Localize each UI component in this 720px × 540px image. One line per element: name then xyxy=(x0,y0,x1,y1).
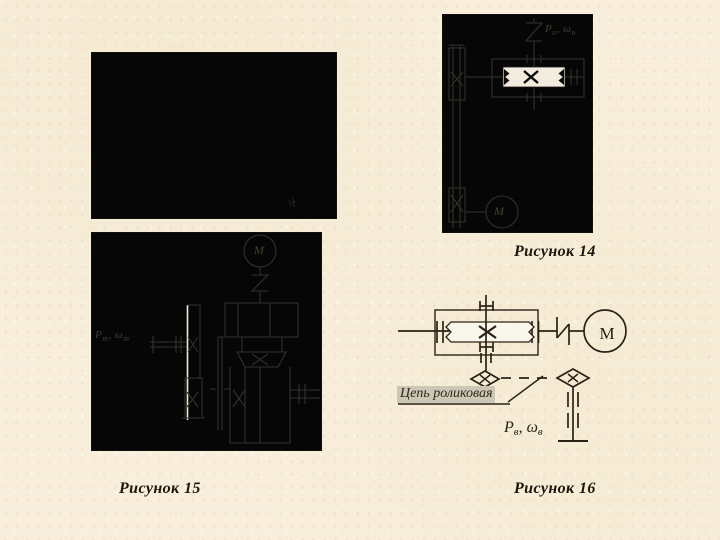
bearing-x-symbol xyxy=(480,375,490,383)
bearing-x-symbol xyxy=(188,337,198,352)
faint-artifact-mark xyxy=(92,53,336,218)
bearing-x-symbol xyxy=(568,374,578,382)
bearing-x-symbol xyxy=(252,354,268,365)
gear-housing xyxy=(218,303,298,352)
figure14-power-label: Pн, ωн xyxy=(545,23,576,35)
worm-shaft-bar xyxy=(446,322,534,342)
center-shaft xyxy=(210,337,230,430)
figure16-caption: Рисунок 16 xyxy=(514,480,596,498)
figure16-power-label: Pв, ωв xyxy=(504,419,543,437)
figure14-image: Pн, ωн М xyxy=(443,15,592,232)
motor-label: М xyxy=(599,324,614,343)
elastic-coupling-symbol xyxy=(526,18,542,48)
figure15-image: Pт, ωт М xyxy=(92,233,321,450)
figure14-caption: Рисунок 14 xyxy=(514,243,596,261)
figure14-motor-label: М xyxy=(494,204,505,219)
input-shaft xyxy=(150,336,187,353)
motor-coupling xyxy=(538,317,584,345)
bevel-gear-symbol xyxy=(237,352,286,367)
worm-gearbox xyxy=(398,295,539,371)
elastic-coupling-symbol xyxy=(252,275,268,303)
bearing-x-symbol xyxy=(233,390,245,407)
white-vertical-shaft xyxy=(182,305,205,420)
motor-unit xyxy=(465,196,518,228)
lower-housing xyxy=(230,367,290,443)
chain-type-label: Цепь роликовая xyxy=(397,386,495,403)
figure15-motor-label: М xyxy=(254,243,265,258)
worm-shaft-bar xyxy=(503,67,565,87)
bearing-x-symbol xyxy=(187,392,198,407)
figure16-motor-letter-box: М xyxy=(590,318,624,348)
figure15-power-label: Pт, ωт xyxy=(95,329,130,341)
figure15-caption: Рисунок 15 xyxy=(119,480,201,498)
top-left-image xyxy=(92,53,336,218)
output-shaft xyxy=(290,384,320,404)
vertical-input-shaft xyxy=(449,45,465,228)
presentation-slide: Pн, ωн М xyxy=(0,0,720,540)
